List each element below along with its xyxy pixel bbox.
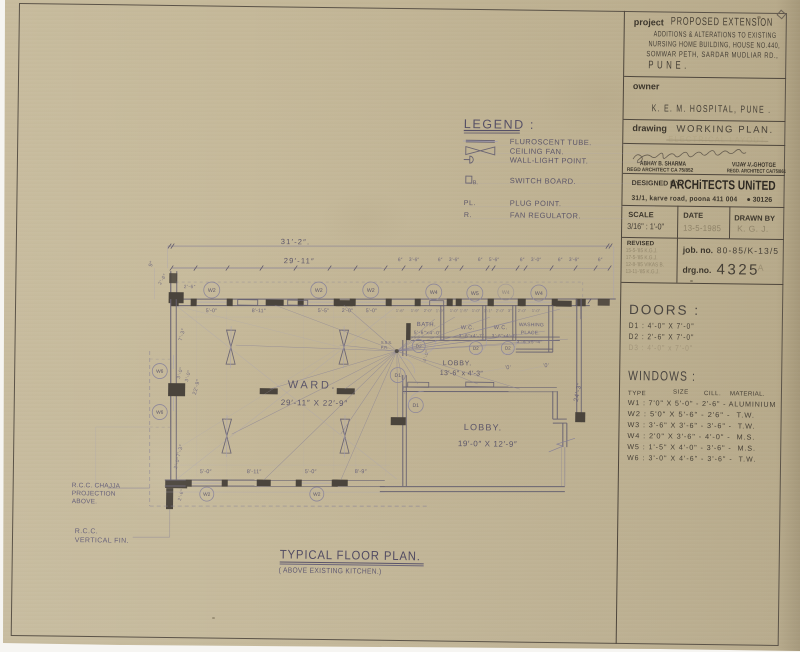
svg-text:8'-9″: 8'-9″ xyxy=(355,469,367,475)
svg-text:4'-0″: 4'-0″ xyxy=(422,349,431,362)
svg-text:WARD.: WARD. xyxy=(288,379,337,392)
svg-text:3'-0″: 3'-0″ xyxy=(184,369,193,382)
svg-text:5'-0″: 5'-0″ xyxy=(366,308,377,314)
svg-text:VERTICAL FIN.: VERTICAL FIN. xyxy=(75,537,129,545)
svg-text:3'-6″: 3'-6″ xyxy=(449,257,460,263)
svg-text:WALL-LIGHT POINT.: WALL-LIGHT POINT. xyxy=(510,156,589,166)
svg-text:W2: W2 xyxy=(315,288,323,294)
svg-text:W2: W2 xyxy=(367,288,375,294)
svg-text:'0': '0' xyxy=(543,363,550,369)
svg-text:6″: 6″ xyxy=(478,257,483,263)
svg-text:W2: W2 xyxy=(208,288,216,294)
svg-text:1'-6″: 1'-6″ xyxy=(396,308,405,313)
svg-text:2'-0″: 2'-0″ xyxy=(424,308,433,313)
svg-text:24'-3″: 24'-3″ xyxy=(573,382,584,403)
svg-text:LEGEND :: LEGEND : xyxy=(464,117,535,132)
svg-text:W6: W6 xyxy=(156,369,164,375)
svg-text:1'-5″: 1'-5″ xyxy=(460,308,469,313)
svg-text:5'-0″: 5'-0″ xyxy=(206,308,217,314)
svg-text:B.: B. xyxy=(473,180,479,186)
svg-text:2'-0″: 2'-0″ xyxy=(496,308,505,313)
svg-text:W4: W4 xyxy=(502,290,510,296)
svg-text:W6: W6 xyxy=(156,410,164,416)
svg-text:D1: D1 xyxy=(395,373,402,379)
svg-text:3'-0″: 3'-0″ xyxy=(531,257,542,263)
svg-text:2'-0″: 2'-0″ xyxy=(342,308,353,314)
svg-text:19′-0″ X 12′-9″: 19′-0″ X 12′-9″ xyxy=(458,439,518,449)
svg-text:2'-6″: 2'-6″ xyxy=(157,273,168,286)
svg-text:PL.: PL. xyxy=(464,200,476,207)
svg-text:W4: W4 xyxy=(535,291,543,297)
svg-text:R.C.C.: R.C.C. xyxy=(75,528,98,535)
svg-text:8'-11″: 8'-11″ xyxy=(247,469,262,475)
svg-text:D1: D1 xyxy=(413,403,420,409)
svg-text:W2: W2 xyxy=(313,492,321,498)
svg-text:7'-3″: 7'-3″ xyxy=(178,328,187,342)
svg-text:1'-0″: 1'-0″ xyxy=(450,308,459,313)
svg-text:1'-9″: 1'-9″ xyxy=(411,308,420,313)
svg-text:W5: W5 xyxy=(471,291,479,297)
svg-text:WASHING: WASHING xyxy=(519,322,544,328)
svg-text:LOBBY.: LOBBY. xyxy=(443,360,472,367)
svg-text:1'-9″: 1'-9″ xyxy=(436,308,445,313)
svg-text:2'-0″: 2'-0″ xyxy=(518,308,527,313)
svg-text:9″: 9″ xyxy=(148,260,156,268)
svg-text:W.C.: W.C. xyxy=(461,325,475,331)
svg-text:3'-0″: 3'-0″ xyxy=(176,366,185,379)
svg-text:BATH.: BATH. xyxy=(417,322,436,328)
svg-text:29′-11″ X 22′-9″: 29′-11″ X 22′-9″ xyxy=(281,398,348,408)
svg-text:5'-6″: 5'-6″ xyxy=(489,257,500,263)
svg-text:29′-11″: 29′-11″ xyxy=(284,256,315,265)
svg-text:ABOVE.: ABOVE. xyxy=(72,498,97,505)
svg-text:3'-6″: 3'-6″ xyxy=(569,257,580,263)
svg-text:1'-0″: 1'-0″ xyxy=(532,308,541,313)
svg-text:13′-6″ x 4′-3″: 13′-6″ x 4′-3″ xyxy=(440,370,484,378)
svg-text:SWITCH BOARD.: SWITCH BOARD. xyxy=(510,176,576,186)
svg-text:5'-0″: 5'-0″ xyxy=(305,469,317,475)
svg-text:1'-1″: 1'-1″ xyxy=(484,308,493,313)
svg-text:6″: 6″ xyxy=(520,257,525,263)
svg-text:6″: 6″ xyxy=(438,257,443,263)
svg-text:1'-0″: 1'-0″ xyxy=(472,308,481,313)
svg-text:5'-5″: 5'-5″ xyxy=(318,308,329,314)
svg-text:6″: 6″ xyxy=(558,257,563,263)
svg-text:R.: R. xyxy=(464,212,472,219)
svg-text:LOBBY.: LOBBY. xyxy=(464,422,503,433)
svg-text:D2: D2 xyxy=(505,346,511,351)
svg-text:FAN REGULATOR.: FAN REGULATOR. xyxy=(510,211,581,221)
svg-text:3'-6″: 3'-6″ xyxy=(409,257,420,263)
svg-text:2'-6″: 2'-6″ xyxy=(184,284,196,290)
svg-text:6″: 6″ xyxy=(398,257,403,263)
svg-text:3″: 3″ xyxy=(508,308,512,313)
svg-text:W4: W4 xyxy=(430,290,438,296)
svg-text:P.R.: P.R. xyxy=(381,345,388,350)
svg-text:PLUG POINT.: PLUG POINT. xyxy=(510,199,562,209)
svg-text:'0': '0' xyxy=(505,365,512,371)
svg-text:31′-2″.: 31′-2″. xyxy=(281,237,311,246)
svg-text:6″: 6″ xyxy=(598,257,603,263)
svg-text:22'-9″: 22'-9″ xyxy=(192,378,202,395)
svg-text:8'-11″: 8'-11″ xyxy=(252,308,266,314)
